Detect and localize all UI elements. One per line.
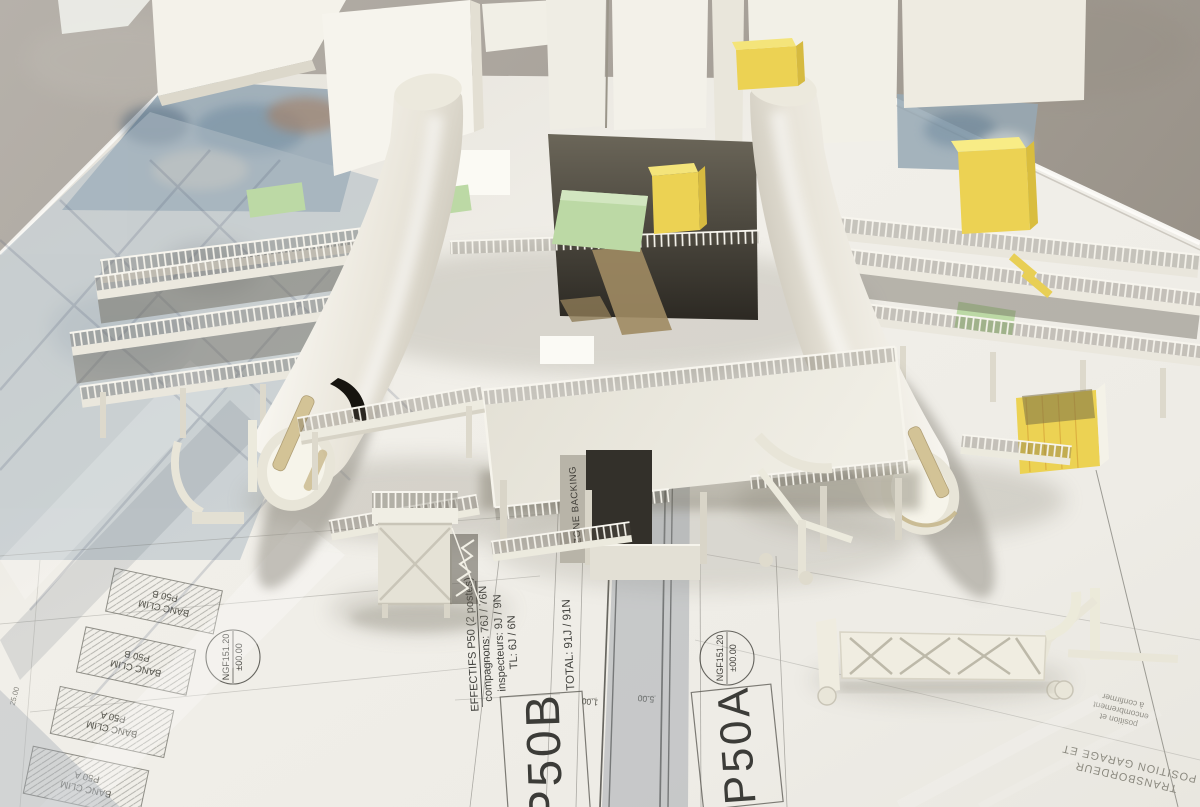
station-label-p50b: P50B (516, 691, 573, 807)
tower-leg (382, 604, 388, 618)
cradle-wheel (799, 571, 813, 585)
crate-front (958, 148, 1030, 234)
stair-well (450, 534, 478, 604)
massing-block (902, 0, 1086, 108)
stamp-elevation: NGF151.20 (715, 635, 725, 682)
tower-shadow (350, 604, 490, 632)
cradle-wheel (759, 553, 773, 567)
massing-block (546, 0, 606, 130)
gantry-wheel (818, 687, 836, 705)
tower-top-deck (372, 508, 458, 524)
railing-posts (372, 492, 458, 508)
crane-base (192, 512, 244, 524)
crate-front (736, 46, 798, 90)
massing-block (612, 0, 708, 130)
crane-post (248, 420, 257, 492)
gantry-shadow (838, 684, 1052, 691)
tower-leg (444, 604, 450, 618)
dim-1m: 1.00 (581, 696, 599, 708)
gantry-end-post-left (816, 618, 840, 694)
yellow-crate-center (648, 163, 707, 234)
yellow-crate-right-large (951, 137, 1038, 234)
station-label-p50a: P50A (708, 684, 765, 807)
lower-stage (590, 545, 700, 580)
yellow-crate-top (732, 38, 805, 90)
gantry-wheel (1055, 681, 1073, 699)
cradle-post (798, 520, 806, 578)
white-cube-mid (540, 336, 594, 364)
stamp-datum: ±00.00 (728, 644, 738, 671)
massing-block (482, 0, 556, 52)
photo-of-assembly-line-scale-model: BANC CLIM P50 B BANC CLIM P50 B BANC CLI… (0, 0, 1200, 807)
crate-front (652, 172, 700, 234)
